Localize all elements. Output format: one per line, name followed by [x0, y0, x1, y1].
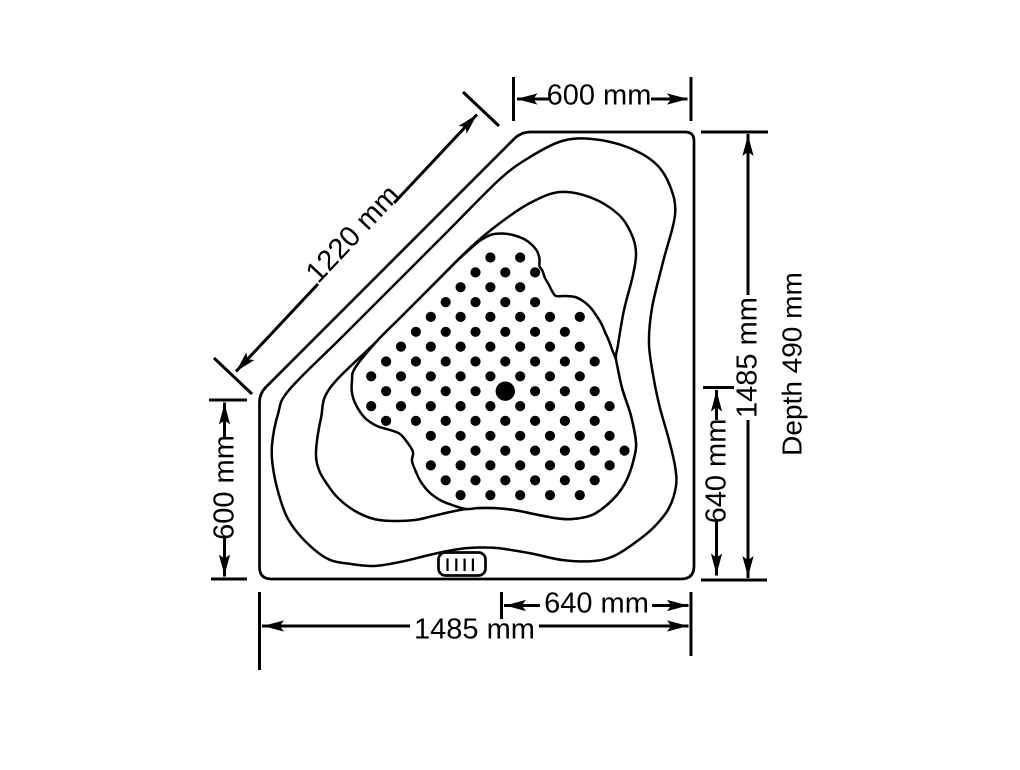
svg-text:1485 mm: 1485 mm: [414, 614, 535, 646]
svg-text:600 mm: 600 mm: [209, 435, 241, 540]
svg-text:640 mm: 640 mm: [544, 588, 649, 620]
svg-text:Depth 490 mm: Depth 490 mm: [777, 272, 808, 456]
svg-text:1485 mm: 1485 mm: [732, 297, 764, 418]
svg-text:640 mm: 640 mm: [701, 419, 733, 524]
svg-text:600 mm: 600 mm: [547, 80, 652, 112]
